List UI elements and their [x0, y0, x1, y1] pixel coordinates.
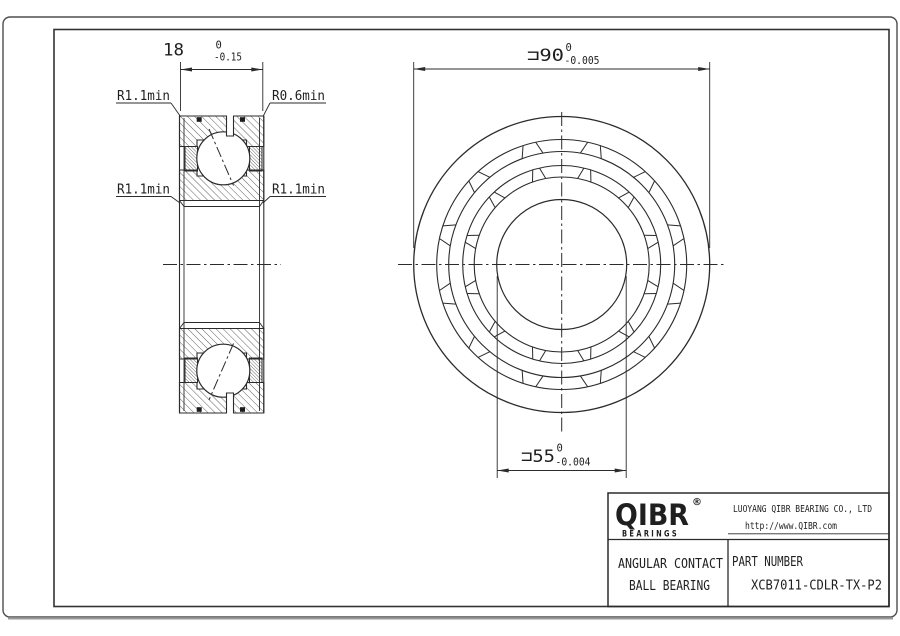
pocket-edge-line	[619, 331, 630, 337]
pocket-edge-line	[578, 351, 584, 361]
front-view: ⊐90 0 -0.005 ⊐55 0 -0.004	[398, 42, 726, 478]
pocket-edge-line	[522, 370, 523, 383]
ball-bottom	[197, 344, 250, 397]
registered-trademark-icon: ®	[692, 497, 702, 508]
pocket-edge-line	[469, 181, 475, 193]
pocket-edge-line	[494, 331, 505, 337]
pocket-edge-line	[634, 352, 646, 358]
outer-dim-value: ⊐90	[527, 46, 564, 66]
part-number-value: XCB7011-CDLR-TX-P2	[751, 578, 882, 594]
pocket-edge-line	[600, 370, 601, 383]
chamfer-line	[180, 323, 185, 329]
leader-line	[171, 197, 180, 204]
pocket-edge-line	[522, 146, 523, 159]
counterbore-slot-bottom	[227, 393, 234, 415]
cage-section	[250, 358, 263, 383]
outer-dim-tol-top: 0	[566, 42, 572, 54]
outer-dim-tol-bottom: -0.005	[565, 55, 600, 67]
pocket-edge-line	[439, 239, 450, 246]
leader-line	[171, 103, 181, 117]
arrowhead-left	[497, 469, 509, 473]
pocket-edge-line	[649, 181, 655, 193]
pocket-edge-line	[628, 197, 634, 208]
cage-section	[185, 358, 198, 383]
brand-tagline: BEARINGS	[622, 530, 679, 540]
cage-section	[250, 147, 263, 172]
pocket-edge-line	[648, 242, 658, 248]
radius-label-mid-left: R1.1min	[117, 182, 170, 198]
part-number-label: PART NUMBER	[732, 555, 803, 570]
pocket-edge-line	[578, 168, 584, 178]
company-name: LUOYANG QIBR BEARING CO., LTD	[733, 504, 872, 515]
pocket-edge-line	[489, 197, 495, 208]
pocket-edge-line	[539, 168, 545, 178]
pocket-edge-line	[536, 142, 543, 153]
width-dimension: 18 0 -0.15	[163, 40, 263, 112]
seal-groove-mark	[197, 117, 202, 122]
chamfer-line	[260, 323, 264, 329]
pocket-edge-line	[619, 192, 630, 198]
pocket-edge-line	[489, 321, 495, 332]
pocket-edge-line	[634, 172, 646, 178]
pocket-edge-line	[465, 280, 475, 286]
company-website: http://www.QIBR.com	[745, 521, 837, 532]
radius-label-top-left: R1.1min	[117, 88, 170, 104]
width-tol-top: 0	[216, 40, 222, 52]
arrowhead-right	[251, 68, 262, 72]
pocket-edge-line	[649, 336, 655, 348]
pocket-edge-line	[465, 242, 475, 248]
ball-top	[197, 132, 250, 185]
pocket-edge-line	[439, 283, 450, 290]
seal-groove-mark	[240, 117, 245, 122]
pocket-edge-line	[443, 303, 456, 304]
pocket-edge-line	[648, 280, 658, 286]
bore-dim-tol-bottom: -0.004	[556, 457, 591, 469]
seal-groove-mark	[197, 407, 202, 412]
pocket-edge-line	[469, 336, 475, 348]
arrowhead-right	[615, 469, 627, 473]
pocket-edge-line	[600, 146, 601, 159]
bore-dim-tol-top: 0	[557, 443, 563, 455]
pocket-edge-line	[580, 142, 587, 153]
width-tol-bottom: -0.15	[214, 52, 242, 64]
width-value: 18	[163, 41, 184, 61]
product-type-line1: ANGULAR CONTACT	[618, 557, 723, 572]
pocket-edge-line	[478, 352, 490, 358]
chamfer-line	[180, 201, 185, 207]
pocket-edge-line	[668, 303, 681, 304]
arrowhead-left	[181, 68, 193, 72]
bore-dim-value: ⊐55	[521, 447, 555, 467]
pocket-edge-line	[443, 225, 456, 226]
pocket-edge-line	[580, 376, 587, 387]
pocket-edge-line	[668, 225, 681, 226]
radius-label-mid-right: R1.1min	[272, 182, 325, 198]
arrowhead-left	[414, 67, 426, 71]
pocket-edge-line	[673, 239, 684, 246]
bearing-drawing-canvas: 18 0 -0.15 R1.1min R0.6min R1.1min R1.1m…	[0, 0, 900, 636]
pocket-edge-line	[628, 321, 634, 332]
pocket-edge-line	[539, 351, 545, 361]
pocket-edge-line	[478, 172, 490, 178]
pocket-edge-line	[494, 192, 505, 198]
product-type-line2: BALL BEARING	[629, 579, 710, 594]
pocket-edge-line	[673, 283, 684, 290]
radius-label-top-right: R0.6min	[272, 88, 325, 104]
pocket-edge-line	[536, 376, 543, 387]
counterbore-slot-top	[227, 115, 234, 137]
seal-groove-mark	[240, 407, 245, 412]
section-view: 18 0 -0.15 R1.1min R0.6min R1.1min R1.1m…	[116, 40, 326, 415]
arrowhead-right	[698, 67, 710, 71]
brand-logo: QIBR	[615, 498, 689, 532]
title-block: QIBR ® BEARINGS LUOYANG QIBR BEARING CO.…	[608, 493, 889, 607]
chamfer-line	[260, 201, 264, 207]
leader-line	[263, 103, 270, 117]
cage-section	[185, 147, 198, 172]
